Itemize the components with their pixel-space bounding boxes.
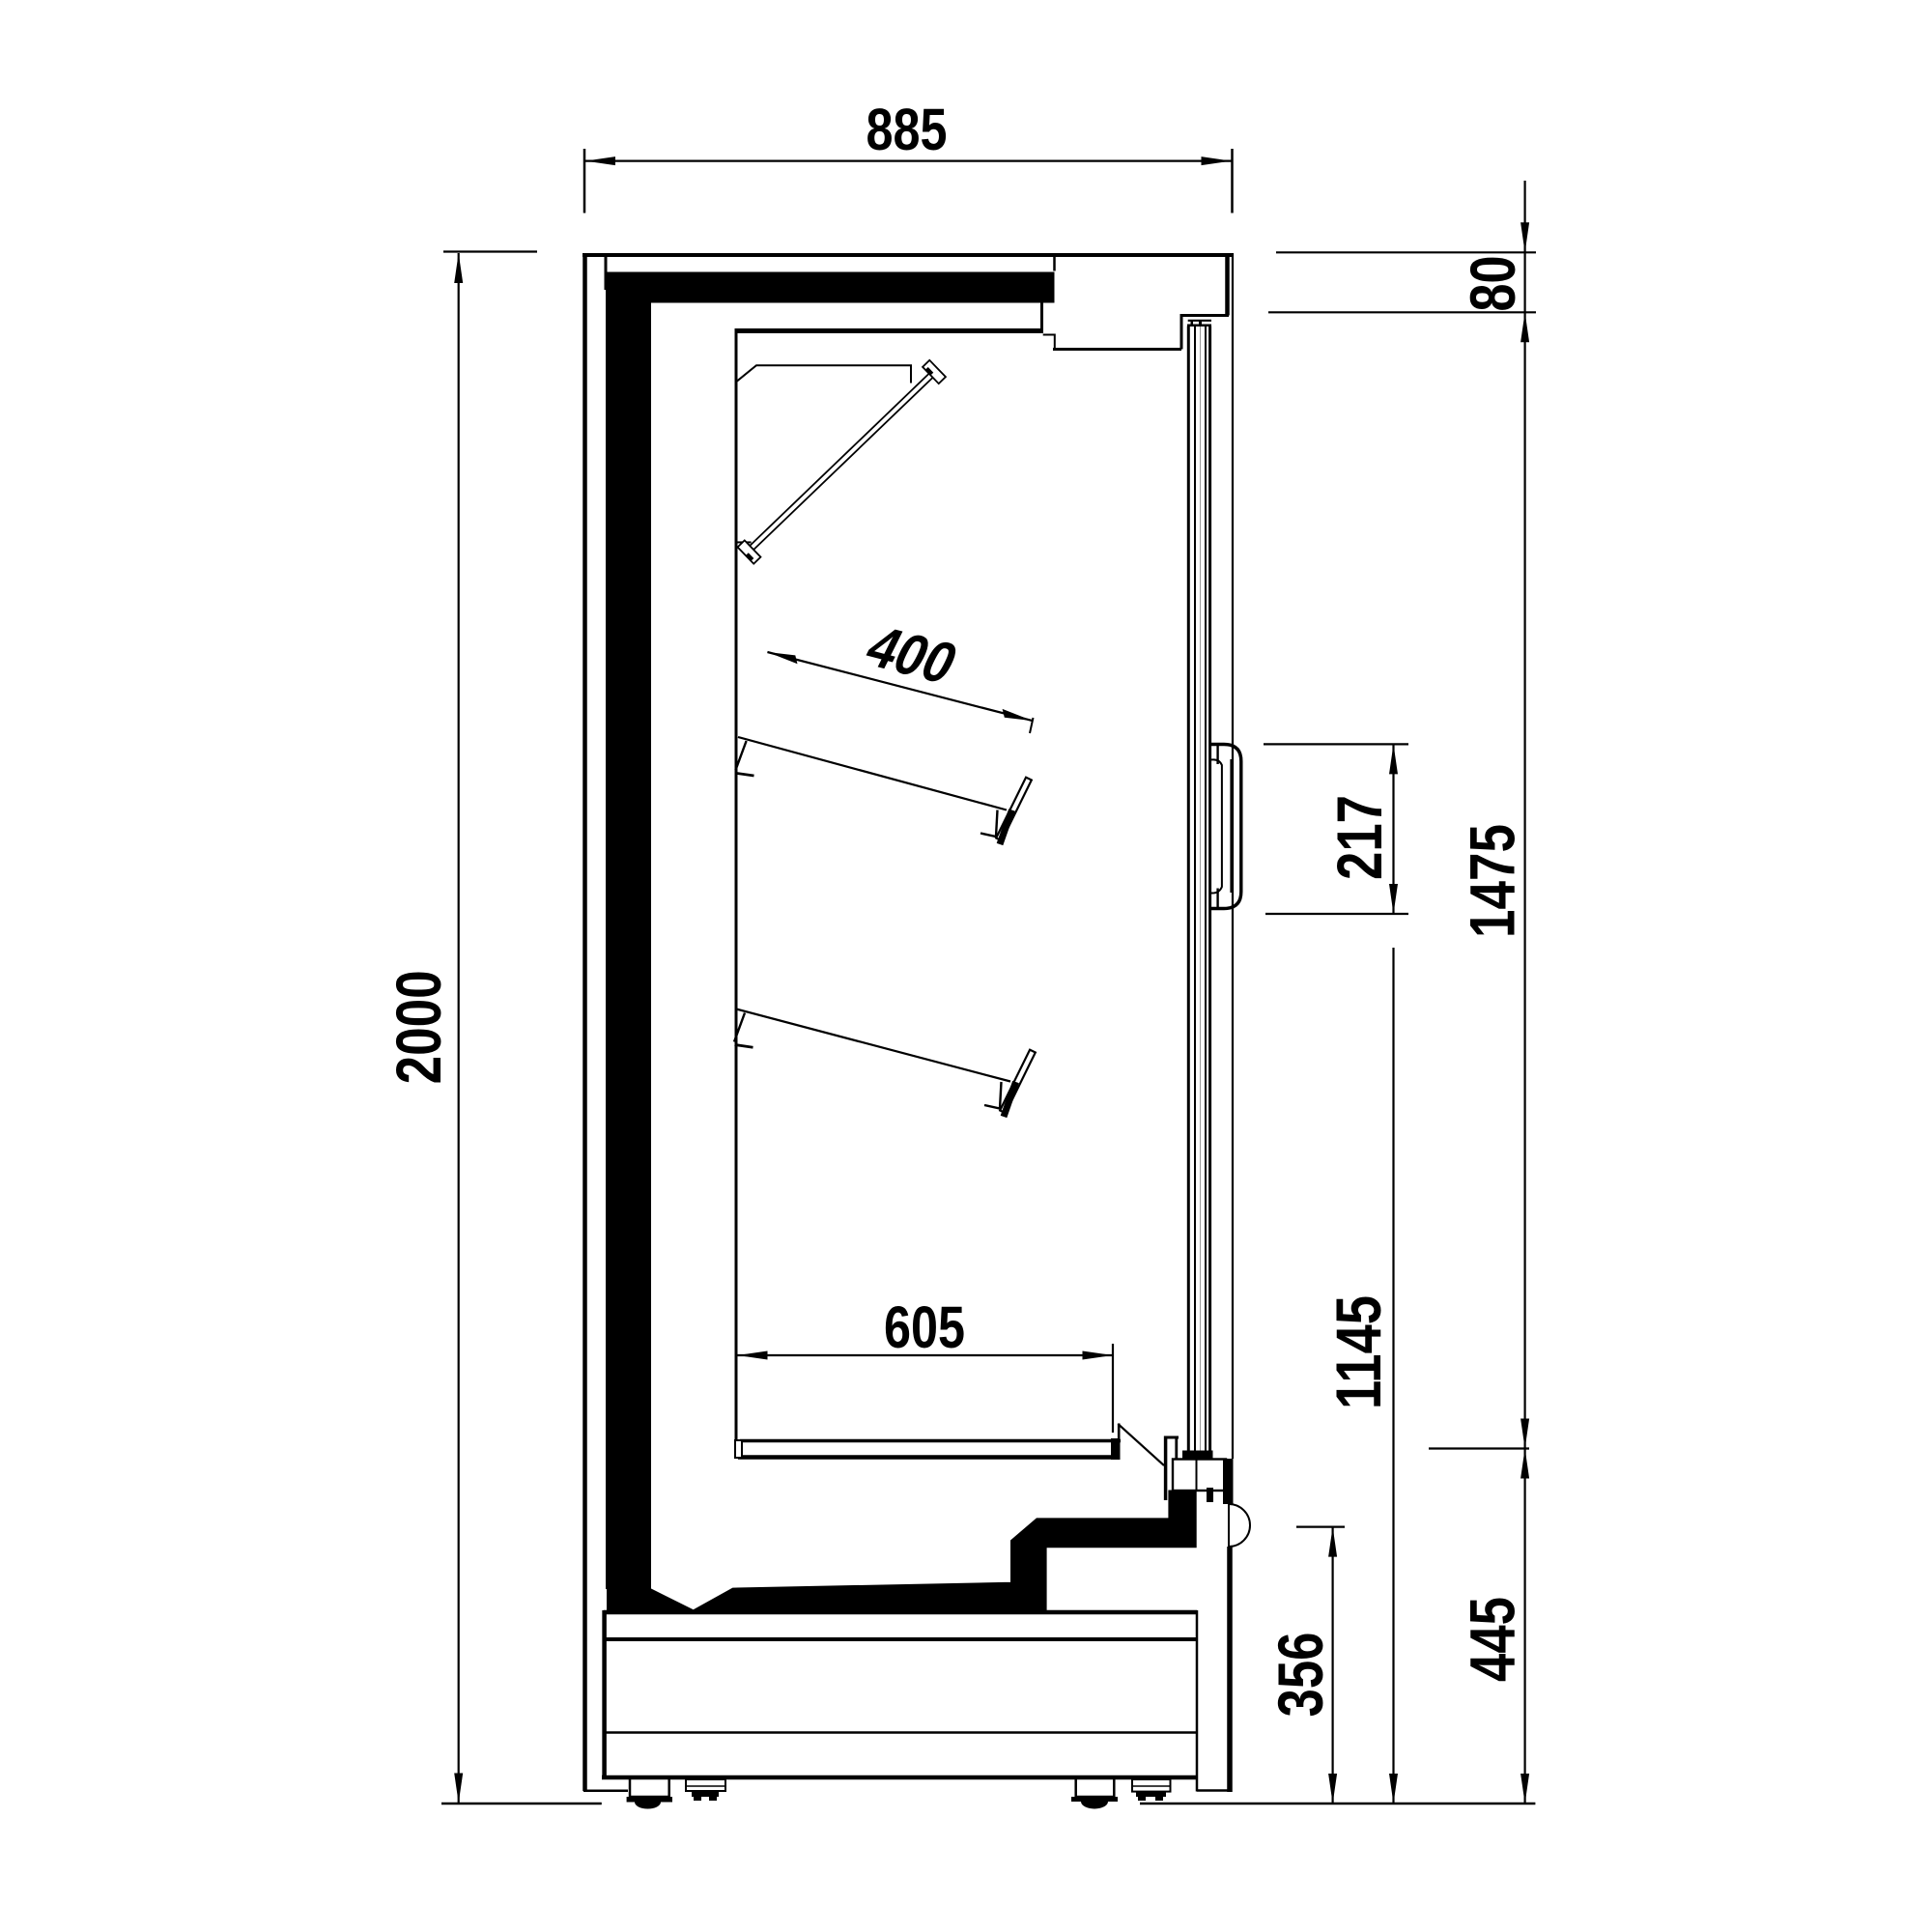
svg-text:356: 356 [1264,1633,1336,1718]
svg-text:2000: 2000 [383,970,454,1084]
svg-text:80: 80 [1457,256,1528,312]
svg-text:1145: 1145 [1322,1295,1394,1409]
svg-text:445: 445 [1457,1597,1528,1682]
svg-text:605: 605 [884,1294,965,1360]
svg-text:1475: 1475 [1457,824,1528,938]
svg-text:885: 885 [867,97,948,162]
svg-text:217: 217 [1323,795,1395,880]
